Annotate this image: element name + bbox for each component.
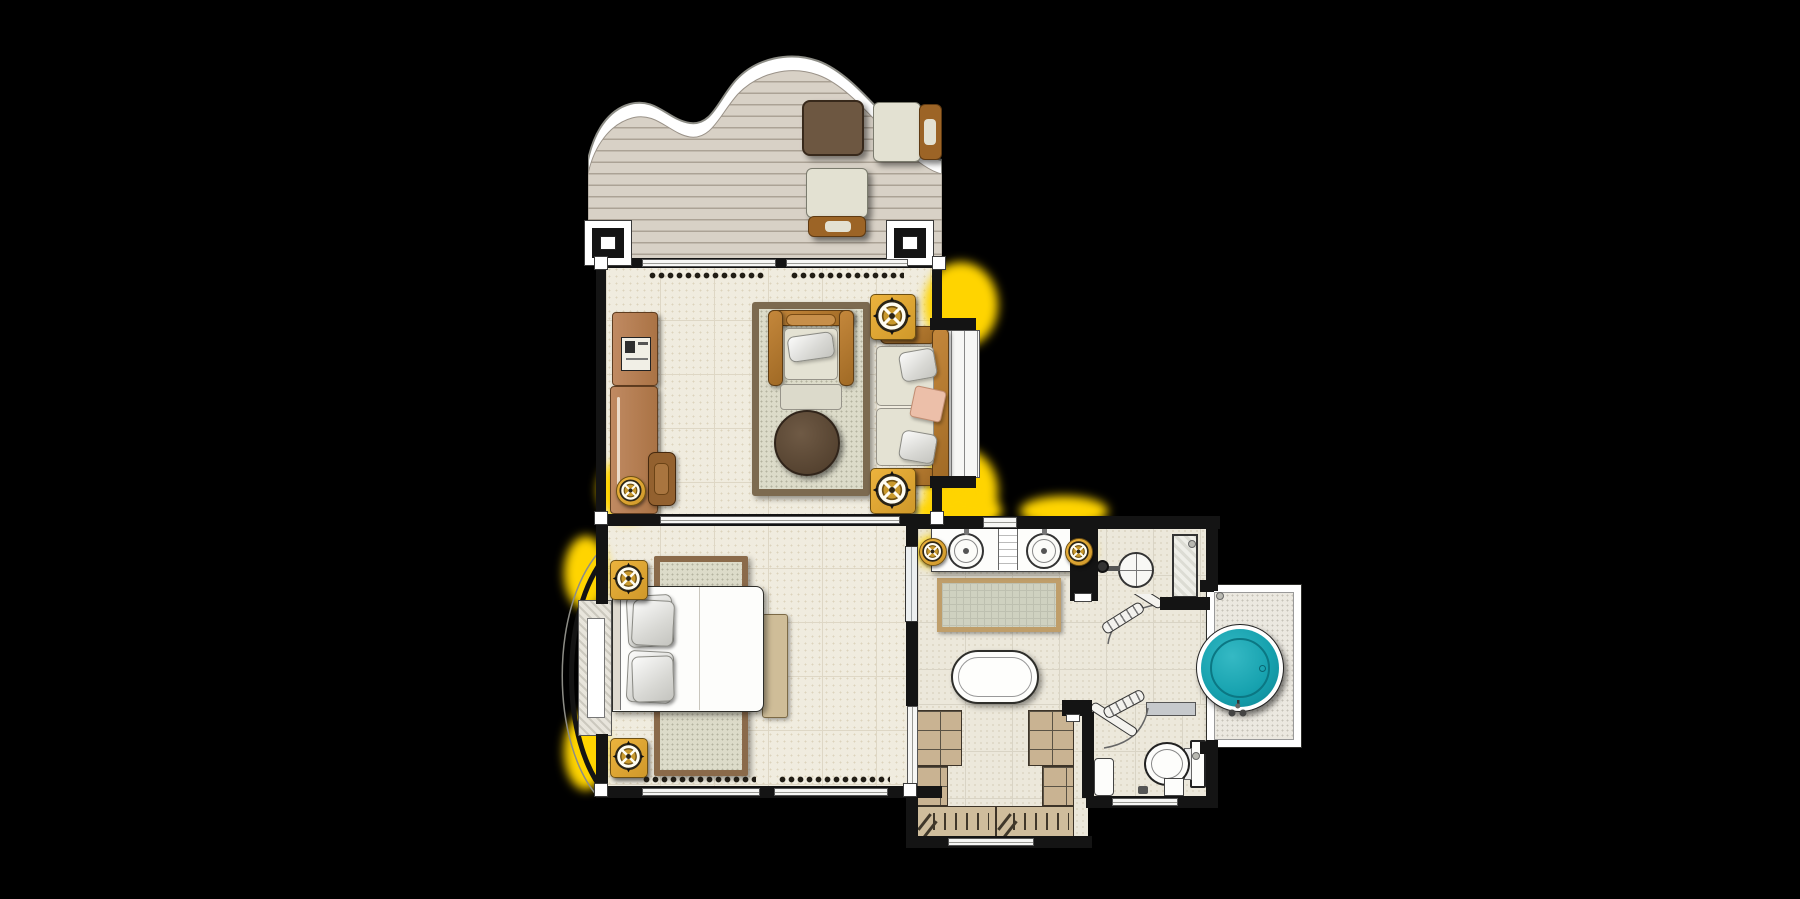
pool-faucet <box>1226 700 1250 720</box>
drain-mark <box>1216 592 1224 600</box>
sofa-pillow <box>898 347 939 383</box>
desk-chair <box>648 452 676 506</box>
wall-post <box>930 511 944 525</box>
sofa-pillow <box>898 429 939 465</box>
nightstand-lamp <box>610 738 648 778</box>
headrest-notch <box>825 221 851 232</box>
bed-pillow <box>631 655 675 702</box>
compass-lamp-icon <box>617 477 644 504</box>
window-seat-cushion <box>587 618 605 718</box>
drain-mark <box>1192 752 1200 760</box>
wardrobe <box>916 710 962 766</box>
minibar-cabinet <box>612 312 658 386</box>
armchair-arm <box>768 310 783 386</box>
armchair-bolster <box>786 314 836 326</box>
bathroom-north-wall <box>914 516 1220 529</box>
compass-lamp-icon <box>612 740 645 773</box>
wall-post <box>594 256 608 270</box>
armchair-ottoman <box>780 384 842 410</box>
round-coffee-table <box>774 410 840 476</box>
sink-drain <box>963 548 969 554</box>
compass-lamp-icon <box>872 470 912 510</box>
curtain <box>648 270 766 281</box>
bath-rug <box>937 578 1061 632</box>
compass-lamp-icon <box>612 562 645 595</box>
pier-niche <box>1074 593 1092 602</box>
bathroom-window <box>983 517 1017 528</box>
dressing-glass-door <box>907 706 918 786</box>
dressing-window <box>948 838 1034 846</box>
sun-lounger-headrest <box>808 216 866 237</box>
bedroom-sliding-door <box>642 788 760 796</box>
pier-niche <box>1066 714 1080 722</box>
side-table-lamp <box>870 468 916 514</box>
living-sliding-door <box>786 259 908 267</box>
living-sliding-door <box>642 259 776 267</box>
living-west-wall <box>596 258 606 516</box>
hangers <box>933 813 989 830</box>
compass-lamp-icon <box>1066 539 1091 564</box>
window-seat <box>578 600 612 736</box>
sofa-pink-pillow <box>909 385 947 423</box>
floor-drain <box>1138 786 1148 794</box>
wall-post <box>903 783 917 797</box>
hanger-slanted <box>997 813 1012 831</box>
wc-bin <box>1094 758 1114 796</box>
sink-drain <box>1041 548 1047 554</box>
wc-mat <box>1164 778 1184 796</box>
double-bed <box>612 586 764 712</box>
deck-column <box>584 220 632 266</box>
floor-plan-canvas <box>0 0 1800 899</box>
full-length-mirror <box>905 546 918 622</box>
foot-bench <box>762 614 788 718</box>
sun-lounger-headrest <box>919 104 942 160</box>
double-vanity <box>931 528 1081 572</box>
compass-lamp-icon <box>920 539 945 564</box>
curtain <box>790 270 904 281</box>
armchair <box>768 310 854 414</box>
hanger-slanted <box>917 813 932 831</box>
bed-pillow <box>631 599 675 647</box>
wall-post <box>594 783 608 797</box>
console-lamp <box>616 476 646 506</box>
nightstand-lamp <box>610 560 648 600</box>
appliance-detail <box>626 358 648 360</box>
wc-west-wall <box>1082 712 1094 798</box>
pool-jet <box>1259 665 1266 672</box>
headrest-notch <box>924 119 936 145</box>
duvet-fold <box>699 587 700 710</box>
armchair-arm <box>839 310 854 386</box>
wall-post <box>594 511 608 525</box>
wall-sconce <box>1065 538 1093 566</box>
bathroom-east-wall <box>1206 529 1218 591</box>
bedroom-west-wall <box>596 516 608 604</box>
interior-sliding-door <box>660 516 900 524</box>
sink <box>1026 533 1062 569</box>
sun-lounger-cushion <box>806 168 868 218</box>
wall-sconce <box>919 538 947 566</box>
freestanding-bathtub <box>951 650 1039 704</box>
appliance-detail <box>638 342 648 345</box>
desk-chair-seat <box>654 463 669 495</box>
wardrobe <box>1042 766 1074 806</box>
sun-lounger-cushion <box>873 102 921 162</box>
sink <box>948 533 984 569</box>
console-edge <box>617 397 620 485</box>
bathtub-inner <box>958 657 1032 697</box>
curtain <box>642 774 756 785</box>
bedroom-east-wall <box>906 622 918 706</box>
sofa <box>874 326 950 486</box>
bathroom-east-wall <box>1206 740 1218 798</box>
coffee-machine <box>621 337 651 371</box>
hangers <box>1013 813 1069 830</box>
rail-divider <box>995 807 997 836</box>
rain-shower-head <box>1118 552 1154 588</box>
wall-post <box>932 256 946 270</box>
curtain <box>778 774 890 785</box>
side-table-lamp <box>870 294 916 340</box>
drain-mark <box>1188 540 1196 548</box>
wc-window <box>1112 798 1178 806</box>
vanity-cabinet <box>998 529 1018 570</box>
deck-table <box>802 100 864 156</box>
hanging-rail <box>916 806 1074 838</box>
plunge-pool <box>1196 624 1284 712</box>
shower-pier <box>1160 597 1210 610</box>
bedroom-east-wall <box>906 526 918 546</box>
bedroom-sliding-door <box>774 788 888 796</box>
compass-lamp-icon <box>872 296 912 336</box>
headboard <box>613 587 621 710</box>
appliance-detail <box>625 341 635 353</box>
